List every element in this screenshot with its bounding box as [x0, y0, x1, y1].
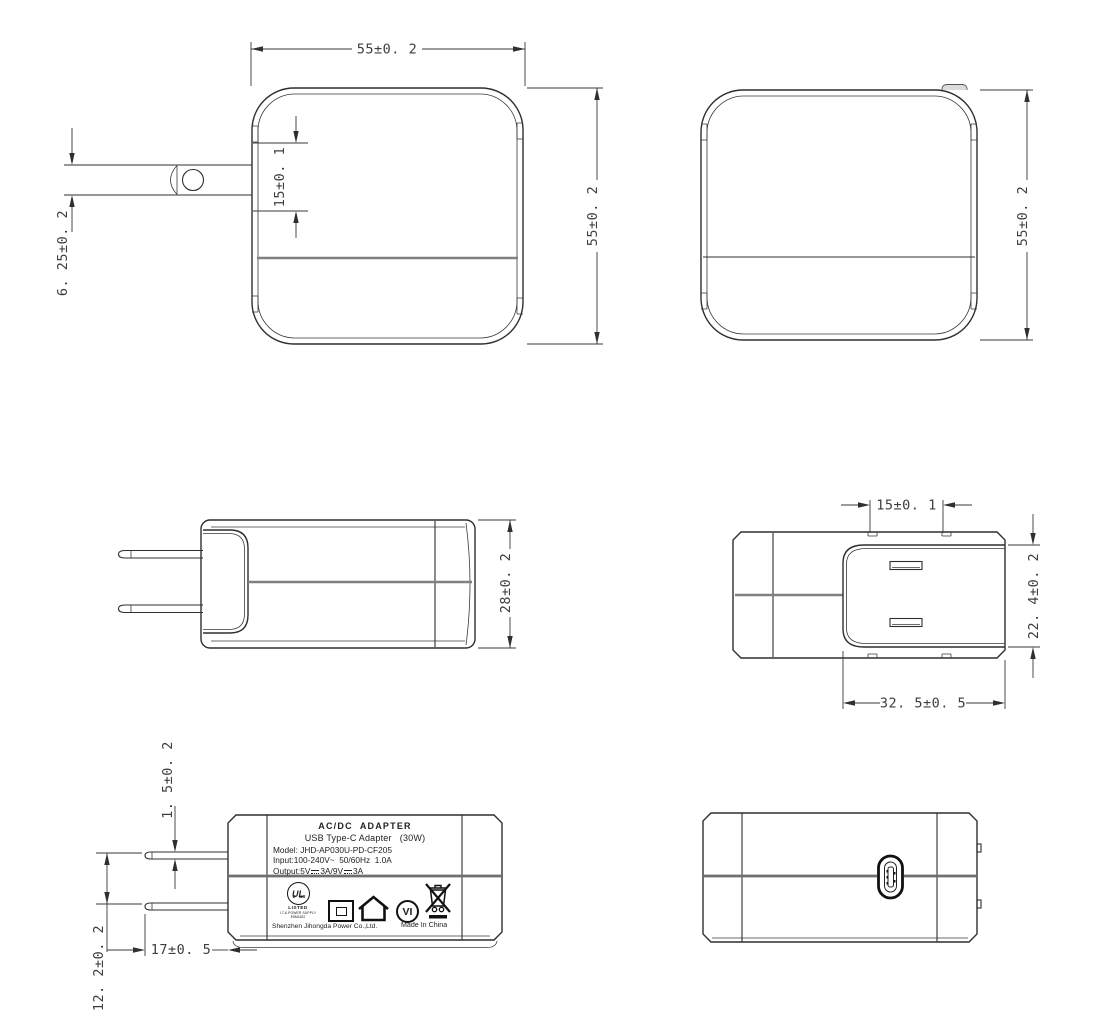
rear-body-inner-seam: [707, 96, 971, 334]
technical-drawing-sheet: 55±0. 2 55±0. 2 15±0. 1 6. 25±0. 2: [0, 0, 1100, 1011]
top-blade-sections: [890, 562, 922, 627]
ul-file-number: E5M1822: [274, 915, 322, 919]
top-plug-base: [843, 545, 1005, 647]
dim-rear-height: 55±0. 2: [980, 90, 1033, 340]
label-blades: [145, 852, 228, 910]
dim-blade-gap: 12. 2±0. 2: [91, 853, 142, 1011]
dim-top-depth: 22. 4±0. 2: [1008, 514, 1042, 678]
front-body-outline: [252, 88, 523, 344]
output-body-outline: [703, 813, 977, 942]
output-prefix: Output:5V: [273, 866, 310, 876]
dim-top-slot: 15±0. 1: [841, 498, 972, 534]
dim-text-front-width: 55±0. 2: [357, 42, 417, 58]
top-view: [733, 532, 1005, 658]
dim-blade-thickness: 1. 5±0. 2: [160, 741, 178, 889]
rear-body-outline: [701, 90, 977, 340]
rating-label: AC/DC ADAPTER USB Type-C Adapter (30W) M…: [268, 816, 462, 940]
origin-text: Made In China: [401, 921, 447, 929]
output-view: [703, 813, 981, 942]
dc-symbol-icon: [344, 869, 352, 875]
side-view: [119, 520, 476, 648]
front-blade: [64, 165, 252, 195]
dim-front-slot: 15±0. 1: [272, 116, 299, 238]
label-title: AC/DC ADAPTER: [268, 821, 462, 831]
drawing-canvas: 55±0. 2 55±0. 2 15±0. 1 6. 25±0. 2: [0, 0, 1100, 1011]
dim-text-blade-gap: 12. 2±0. 2: [91, 925, 107, 1011]
output-suffix: 3A: [353, 866, 363, 876]
label-output-line: Output:5V3A/9V3A: [273, 866, 363, 876]
efficiency-level: VI: [403, 906, 413, 918]
seam-notch: [252, 126, 258, 142]
side-cap-curve: [466, 523, 470, 645]
dim-text-blade-length: 17±0. 5: [151, 942, 211, 958]
label-type-line: USB Type-C Adapter (30W): [268, 833, 462, 843]
blade-hole: [183, 170, 204, 191]
side-plug-base: [203, 530, 248, 633]
manufacturer-text: Shenzhen Jihongda Power Co.,Ltd.: [272, 923, 377, 930]
dim-text-front-blade: 6. 25±0. 2: [55, 210, 71, 296]
dim-text-front-slot: 15±0. 1: [272, 147, 288, 207]
dim-front-blade: 6. 25±0. 2: [55, 128, 75, 296]
ul-mark: UL c us LISTED I.T.& POWER SUPPLY E5M182…: [274, 882, 322, 919]
dim-blade-length: 17±0. 5: [107, 914, 257, 958]
dim-text-top-depth: 22. 4±0. 2: [1026, 553, 1042, 639]
ul-c: c: [293, 894, 296, 900]
dim-text-top-slot: 15±0. 1: [876, 498, 936, 514]
dim-side-height: 28±0. 2: [478, 520, 516, 648]
rear-view: [701, 85, 977, 341]
ul-circle-icon: UL c us: [287, 882, 310, 905]
ul-us: us: [299, 894, 305, 900]
usb-c-port: [879, 856, 903, 898]
dim-text-top-width: 32. 5±0. 5: [880, 696, 966, 712]
front-view: [64, 88, 523, 344]
rear-top-bump: [942, 85, 967, 91]
output-mid: 3A/9V: [320, 866, 343, 876]
dim-front-height: 55±0. 2: [527, 88, 603, 344]
class-ii-icon: [328, 900, 354, 922]
side-blades: [119, 551, 204, 613]
dim-text-front-height: 55±0. 2: [585, 186, 601, 246]
dim-text-blade-thickness: 1. 5±0. 2: [160, 741, 176, 819]
dim-top-width: 32. 5±0. 5: [843, 651, 1005, 712]
usb-c-tongue: [888, 867, 894, 887]
label-input-line: Input:100-240V~ 50/60Hz 1.0A: [273, 855, 392, 865]
dim-front-width: 55±0. 2: [251, 42, 525, 87]
dim-text-side-height: 28±0. 2: [498, 553, 514, 613]
label-model-line: Model: JHD-AP030U-PD-CF205: [273, 845, 392, 855]
dim-text-rear-height: 55±0. 2: [1015, 186, 1031, 246]
dc-symbol-icon: [311, 869, 319, 875]
bottom-cap-line: [233, 941, 497, 948]
